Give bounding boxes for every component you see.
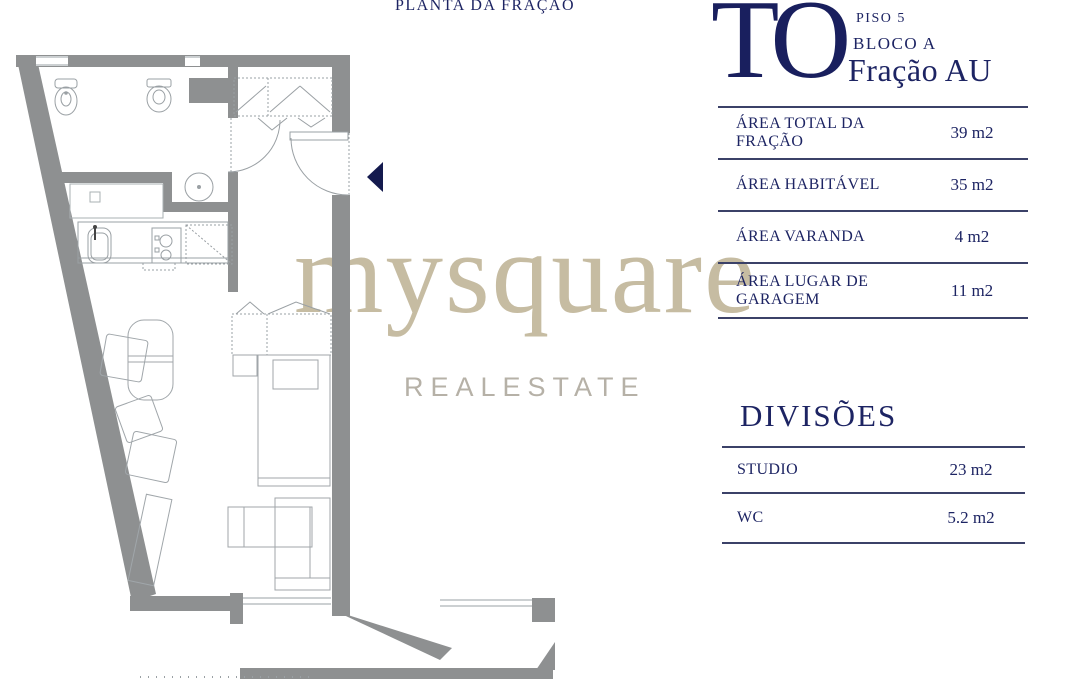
divisions-heading: DIVISÕES [740,398,897,434]
washbasin-icon [185,173,213,201]
entrance-marker-icon [367,162,383,192]
laundry-area [70,184,163,218]
area-value: 4 m2 [916,227,1028,247]
unit-label: Fração AU [848,52,992,89]
bathroom-door [228,118,280,172]
toilet-icon [147,79,171,112]
bidet-icon [55,79,77,115]
area-value: 35 m2 [916,175,1028,195]
areas-table: ÁREA TOTAL DA FRAÇÃO 39 m2 ÁREA HABITÁVE… [718,106,1028,319]
armchair [125,431,177,483]
area-label: ÁREA HABITÁVEL [736,176,916,194]
table-row: ÁREA HABITÁVEL 35 m2 [718,160,1028,212]
bed [258,355,330,486]
divisions-table: STUDIO 23 m2 WC 5.2 m2 [722,446,1025,544]
table-row: ÁREA TOTAL DA FRAÇÃO 39 m2 [718,108,1028,160]
area-value: 11 m2 [916,281,1028,301]
wardrobe [232,302,331,355]
sofa [228,498,330,590]
cooktop-icon [143,228,181,270]
table-row: ÁREA VARANDA 4 m2 [718,212,1028,264]
division-label: WC [737,509,917,527]
table-row: STUDIO 23 m2 [722,448,1025,494]
brand-logo: TO [711,0,844,96]
dining-table [128,320,173,400]
balcony-door [243,598,331,604]
area-label: ÁREA LUGAR DE GARAGEM [736,273,916,309]
nightstand [233,355,257,376]
kitchen-sink-icon [88,225,111,263]
division-value: 5.2 m2 [917,508,1025,528]
walls [16,55,555,679]
balcony-balustrade [440,600,532,606]
page-title: PLANTA DA FRAÇÃO [340,0,630,15]
floor-label: PISO 5 [856,11,906,27]
table-row: ÁREA LUGAR DE GARAGEM 11 m2 [718,264,1028,319]
block-label: BLOCO A [853,34,937,54]
closet [234,78,332,130]
floor-plan [0,0,620,686]
table-row: WC 5.2 m2 [722,494,1025,544]
area-label: ÁREA TOTAL DA FRAÇÃO [736,115,916,151]
area-label: ÁREA VARANDA [736,228,916,246]
division-value: 23 m2 [917,460,1025,480]
division-label: STUDIO [737,461,917,479]
entrance-door [290,132,349,195]
area-value: 39 m2 [916,123,1028,143]
